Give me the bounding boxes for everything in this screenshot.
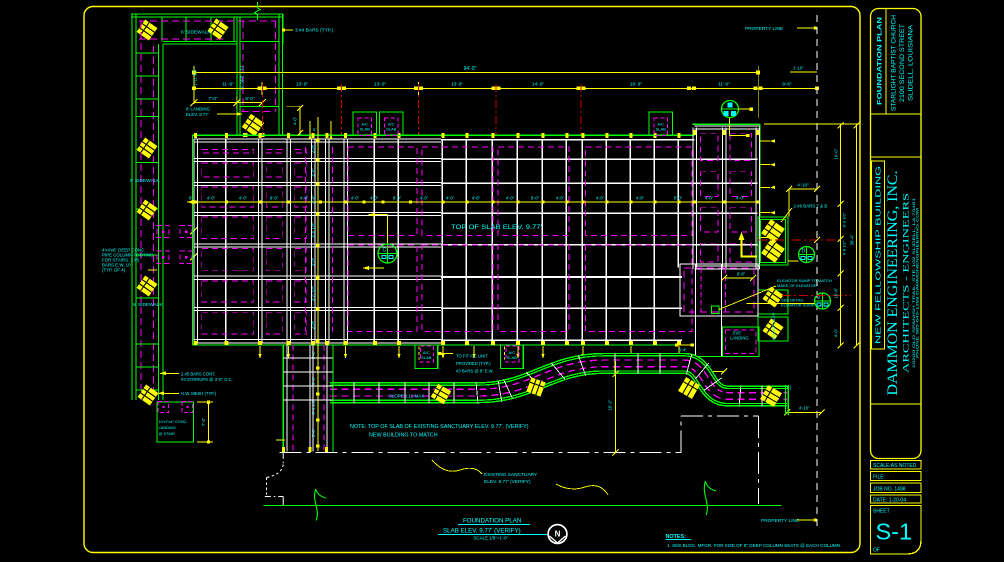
svg-text:4'-0": 4'-0" (311, 320, 316, 329)
svg-text:LANDING: LANDING (730, 336, 749, 341)
svg-text:8'-0": 8'-0" (270, 196, 279, 201)
svg-text:4'-0": 4'-0" (596, 196, 605, 201)
svg-text:SCALE 1/8"=1'-0": SCALE 1/8"=1'-0" (474, 536, 509, 541)
svg-text:2100 SECOND STREET: 2100 SECOND STREET (900, 24, 906, 102)
svg-text:FOUNDATION PLAN: FOUNDATION PLAN (877, 17, 884, 105)
svg-text:S-1: S-1 (876, 519, 913, 545)
svg-text:94'-0": 94'-0" (464, 66, 477, 72)
svg-text:4'-10": 4'-10" (799, 406, 810, 411)
svg-text:ELEVATOR SUMP: ELEVATOR SUMP (781, 303, 815, 308)
svg-text:4'-0": 4'-0" (207, 196, 216, 201)
svg-text:#3 STIRRUPS @ 3'-0" O.C.: #3 STIRRUPS @ 3'-0" O.C. (181, 377, 233, 382)
svg-text:TO FIT A/C UNIT: TO FIT A/C UNIT (456, 354, 488, 359)
svg-text:STARLIGHT BAPTIST CHURCH: STARLIGHT BAPTIST CHURCH (892, 15, 898, 111)
svg-text:ELEV. 9.77': ELEV. 9.77' (186, 112, 209, 117)
svg-text:4'-0": 4'-0" (420, 196, 429, 201)
svg-text:PHONE 985-643-1288 DAMMONEN: PHONE 985-643-1288 DAMMONENGINEERING.COM (916, 208, 920, 358)
svg-text:JOB NO. 1498: JOB NO. 1498 (873, 487, 906, 493)
svg-text:4'-0": 4'-0" (239, 196, 248, 201)
svg-text:PROVIDED (TYP.): PROVIDED (TYP.) (456, 361, 491, 366)
svg-text:8'-0": 8'-0" (245, 96, 255, 101)
svg-text:4'-0": 4'-0" (705, 196, 714, 201)
svg-text:H.W. MESH (TYP.): H.W. MESH (TYP.) (181, 391, 217, 396)
svg-text:MAKE OF ELEVATOR: MAKE OF ELEVATOR (777, 283, 817, 288)
svg-text:4'-10": 4'-10" (797, 183, 809, 188)
svg-text:EXISTING SANCTUARY: EXISTING SANCTUARY (484, 472, 538, 478)
svg-text:SLAB ELEV. 9.77' (VERIFY): SLAB ELEV. 9.77' (VERIFY) (443, 528, 521, 535)
svg-text:16'-9": 16'-9" (630, 82, 643, 88)
svg-text:FOUNDATION PLAN: FOUNDATION PLAN (463, 518, 521, 525)
svg-text:(TYP. OF 4): (TYP. OF 4) (102, 268, 126, 273)
svg-text:16'-8": 16'-8" (834, 287, 839, 298)
svg-text:C: C (383, 248, 387, 254)
svg-text:LANDING: LANDING (159, 425, 176, 430)
svg-text:SLAB: SLAB (507, 355, 518, 360)
svg-text:NEW FELLOWSHIP BUILDING: NEW FELLOWSHIP BUILDING (874, 166, 883, 344)
svg-text:10'x7'x4" CONC.: 10'x7'x4" CONC. (159, 419, 188, 424)
svg-text:4'-0": 4'-0" (834, 328, 839, 337)
svg-text:13'-9": 13'-9" (296, 82, 309, 88)
svg-text:2 #6 BARS T & B: 2 #6 BARS T & B (794, 204, 828, 209)
svg-text:SHEET: SHEET (873, 509, 890, 515)
svg-text:8'-0": 8'-0" (674, 196, 683, 201)
svg-text:11'-6": 11'-6" (222, 82, 234, 88)
svg-text:4'-8 1/2": 4'-8 1/2" (842, 240, 847, 255)
svg-text:SLOPE 1:12: SLOPE 1:12 (240, 65, 245, 90)
svg-text:6": 6" (313, 127, 317, 132)
svg-text:4'-6 1/2": 4'-6 1/2" (311, 285, 316, 301)
svg-text:8'-8": 8'-8" (737, 272, 746, 277)
svg-text:16'-2": 16'-2" (608, 399, 613, 410)
svg-text:4'-0": 4'-0" (370, 196, 379, 201)
svg-text:7'-0": 7'-0" (208, 96, 218, 101)
svg-text:4'-0": 4'-0" (446, 196, 455, 201)
svg-text:4'-6": 4'-6" (636, 196, 645, 201)
svg-text:#3 BARS @ 8" E.W.: #3 BARS @ 8" E.W. (456, 369, 494, 374)
svg-text:SLIDELL, LOUISIANA: SLIDELL, LOUISIANA (909, 25, 915, 101)
svg-text:4'-6": 4'-6" (311, 195, 316, 204)
svg-text:4'-0": 4'-0" (556, 196, 565, 201)
svg-text:8'-0": 8'-0" (393, 196, 402, 201)
svg-text:SCALE:AS NOTED: SCALE:AS NOTED (873, 463, 917, 469)
svg-text:TOP OF SLAB ELEV. 9.77': TOP OF SLAB ELEV. 9.77' (451, 224, 542, 231)
svg-text:4'-0": 4'-0" (351, 196, 360, 201)
svg-text:DATE: 1-20-04: DATE: 1-20-04 (873, 498, 906, 504)
svg-text:6' SIDEWALK: 6' SIDEWALK (133, 302, 163, 308)
svg-text:4'-0": 4'-0" (293, 116, 298, 125)
svg-text:16'-0": 16'-0" (834, 148, 839, 159)
svg-text:PROPERTY LINE: PROPERTY LINE (745, 26, 783, 32)
svg-text:39'-4": 39'-4" (850, 234, 855, 245)
svg-text:DAMMON ENGINEERING, INC.: DAMMON ENGINEERING, INC. (885, 171, 901, 396)
svg-text:NOTE: TOP OF SLAB OF EXISTING: NOTE: TOP OF SLAB OF EXISTING SANCTUARY … (350, 424, 529, 430)
svg-text:OF: OF (873, 548, 880, 554)
svg-text:4'-0": 4'-0" (311, 144, 316, 153)
svg-text:FILE:: FILE: (873, 475, 885, 481)
svg-text:14'-0": 14'-0" (532, 82, 545, 88)
svg-text:7'-4": 7'-4" (201, 417, 206, 426)
svg-text:4'-0": 4'-0" (736, 196, 745, 201)
svg-text:SLOPE 1:12 MAX.: SLOPE 1:12 MAX. (389, 394, 425, 399)
svg-text:4'-0": 4'-0" (311, 257, 316, 266)
svg-text:6' SIDEWALK: 6' SIDEWALK (130, 178, 160, 184)
svg-text:2 #5 BARS CONT.: 2 #5 BARS CONT. (181, 372, 215, 377)
svg-text:BUCKET ELEV: BUCKET ELEV (771, 312, 776, 340)
svg-text:@ STAIR: @ STAIR (159, 431, 175, 436)
svg-text:4'-0": 4'-0" (506, 196, 515, 201)
svg-text:13'-0": 13'-0" (451, 82, 464, 88)
svg-text:ARCHITECTS - ENGINEERS: ARCHITECTS - ENGINEERS (902, 193, 911, 373)
svg-text:8': 8' (189, 196, 192, 201)
svg-text:8' LANDING: 8' LANDING (186, 107, 211, 112)
svg-text:D: D (802, 249, 806, 255)
svg-text:NEW BUILDING TO MATCH: NEW BUILDING TO MATCH (369, 433, 438, 439)
svg-text:SLAB: SLAB (421, 355, 432, 360)
svg-text:1'-11 5/8": 1'-11 5/8" (193, 68, 198, 86)
svg-text:SLAB: SLAB (656, 127, 667, 132)
svg-text:1'-10": 1'-10" (793, 66, 804, 71)
svg-text:13'-0": 13'-0" (374, 82, 387, 88)
svg-text:11'-0": 11'-0" (718, 82, 730, 88)
svg-text:8'-0 1/2": 8'-0 1/2" (842, 212, 847, 227)
svg-text:4'-6": 4'-6" (472, 196, 481, 201)
svg-text:ELEV. 9.77' (VERIFY): ELEV. 9.77' (VERIFY) (484, 479, 531, 485)
svg-text:8'-0": 8'-0" (531, 196, 540, 201)
svg-text:4'-6 1/2": 4'-6 1/2" (311, 222, 316, 238)
svg-text:N: N (555, 530, 561, 539)
svg-text:SLAB: SLAB (360, 127, 371, 132)
svg-text:1. SEE BLDG. MFGR. FOR SIZE OF: 1. SEE BLDG. MFGR. FOR SIZE OF 8" DEEP C… (667, 543, 841, 548)
svg-text:3 #4 BARS (TYP.): 3 #4 BARS (TYP.) (295, 28, 334, 34)
svg-text:6' SIDEWALK: 6' SIDEWALK (181, 30, 211, 36)
svg-text:9'-6": 9'-6" (782, 82, 792, 88)
svg-text:4'-0": 4'-0" (311, 168, 316, 177)
svg-text:4'-6": 4'-6" (300, 196, 309, 201)
svg-text:3'-4": 3'-4" (679, 348, 688, 353)
svg-text:PROPERTY LINE: PROPERTY LINE (761, 518, 799, 524)
svg-text:SLAB: SLAB (386, 127, 397, 132)
